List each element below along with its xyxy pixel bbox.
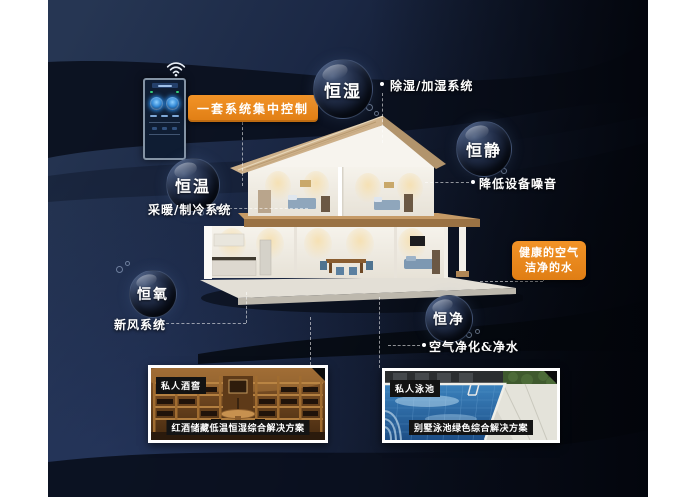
pool-photo: 私人泳池 别墅泳池绿色综合解决方案 [385, 371, 557, 440]
wine-cellar-card: 私人酒窖 红酒储藏低温恒湿综合解决方案 [148, 365, 328, 443]
sparkle-dot [125, 261, 130, 266]
note-fresh-air-system: 新风系统 [114, 316, 166, 333]
bullet-dot-humidity [380, 82, 384, 86]
wine-cellar-caption: 红酒储藏低温恒湿综合解决方案 [166, 420, 309, 435]
connector-humidity-to-house [382, 93, 383, 143]
sparkle-dot [374, 111, 379, 116]
bubble-heng-jing-quiet: 恒静 [456, 121, 512, 177]
bubble-label: 恒静 [466, 137, 502, 161]
smart-control-panel [143, 78, 186, 160]
connector-temp-to-house [224, 208, 308, 209]
wine-cellar-photo: 私人酒窖 红酒储藏低温恒湿综合解决方案 [151, 368, 325, 440]
panel-divider [149, 122, 180, 123]
bubble-heng-jing-clean: 恒净 [425, 295, 473, 343]
connector-control-to-house [242, 122, 243, 186]
pool-caption: 别墅泳池绿色综合解决方案 [409, 420, 533, 435]
callout-line2: 洁净的水 [519, 260, 579, 275]
dial-icon [149, 96, 164, 111]
sparkle-dot [116, 266, 123, 273]
central-control-label: 一套系统集中控制 [188, 95, 318, 122]
panel-divider [149, 134, 180, 135]
callout-line1: 健康的空气 [519, 245, 579, 260]
note-dehumidify-system: 除湿/加湿系统 [390, 77, 473, 94]
connector-quiet-to-house [425, 182, 469, 183]
healthy-air-water-callout: 健康的空气 洁净的水 [512, 241, 586, 280]
note-air-water-purification: 空气净化&净水 [429, 338, 519, 355]
connector-highlight-h [480, 281, 543, 282]
poster: 一套系统集中控制 恒湿 除湿/加湿系统 恒静 降低设备噪音 恒温 采暖/制冷系统… [0, 0, 700, 497]
panel-readouts [145, 113, 184, 119]
bubble-label: 恒温 [175, 173, 211, 197]
panel-buttons [145, 126, 184, 131]
sparkle-dot [475, 329, 480, 334]
bubble-label: 恒净 [433, 309, 465, 329]
poster-content-area: 一套系统集中控制 恒湿 除湿/加湿系统 恒静 降低设备噪音 恒温 采暖/制冷系统… [48, 0, 648, 497]
connector-clean-to-pool-h [388, 345, 420, 346]
bubble-heng-shi: 恒湿 [313, 59, 373, 119]
connector-wine-card-v [310, 317, 311, 365]
panel-dials [145, 94, 184, 113]
note-noise-reduction: 降低设备噪音 [479, 175, 557, 192]
wifi-icon [166, 60, 186, 77]
panel-header [152, 83, 178, 88]
pool-tag: 私人泳池 [390, 380, 440, 397]
bullet-dot-clean [422, 343, 426, 347]
card-corner-fold [312, 368, 325, 381]
note-heating-cooling-system: 采暖/制冷系统 [148, 201, 231, 218]
bubble-label: 恒氧 [137, 284, 169, 304]
wine-cellar-tag: 私人酒窖 [156, 377, 206, 394]
pool-card: 私人泳池 别墅泳池绿色综合解决方案 [382, 368, 560, 443]
connector-oxygen-to-house-h [166, 323, 246, 324]
card-corner-fold [544, 371, 557, 384]
dial-icon [165, 96, 180, 111]
bullet-dot-quiet [471, 180, 475, 184]
bubble-heng-yang: 恒氧 [129, 270, 177, 318]
bubble-label: 恒湿 [324, 77, 362, 102]
connector-pool-card-v [379, 297, 380, 368]
connector-oxygen-to-house-v [246, 292, 247, 323]
